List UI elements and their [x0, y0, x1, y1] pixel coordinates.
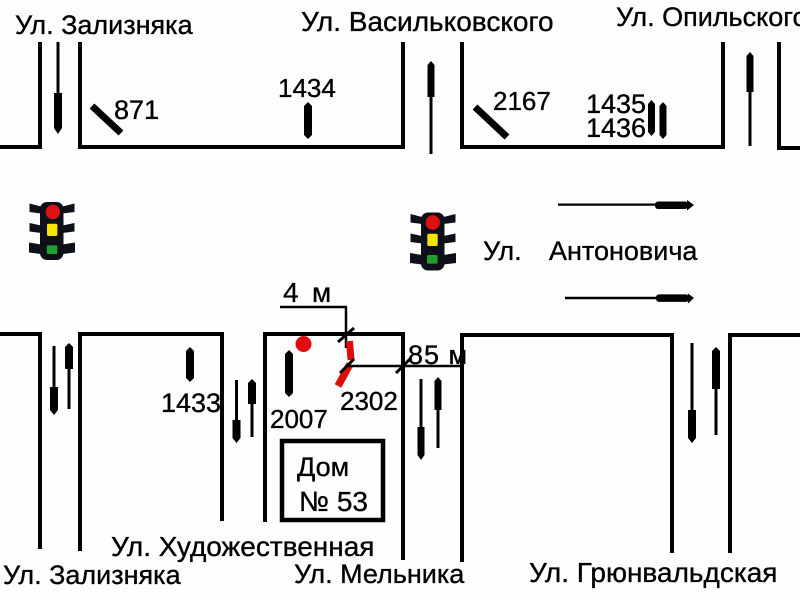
svg-text:Ул. Мельника: Ул. Мельника — [294, 559, 465, 589]
svg-text:Ул. Зализняка: Ул. Зализняка — [15, 10, 194, 40]
svg-text:Дом: Дом — [297, 452, 349, 482]
svg-text:871: 871 — [114, 95, 159, 125]
svg-text:м: м — [312, 277, 331, 308]
svg-text:Ул. Художественная: Ул. Художественная — [111, 531, 374, 562]
svg-text:1433: 1433 — [161, 388, 221, 418]
svg-text:85 м: 85 м — [408, 340, 468, 370]
svg-text:Антоновича: Антоновича — [549, 236, 698, 266]
svg-text:1434: 1434 — [278, 73, 336, 103]
svg-text:Ул.: Ул. — [483, 236, 522, 266]
svg-text:Ул. Васильковского: Ул. Васильковского — [301, 6, 554, 37]
svg-text:2007: 2007 — [270, 404, 328, 434]
svg-text:2302: 2302 — [340, 386, 398, 416]
svg-text:1436: 1436 — [586, 113, 646, 143]
svg-text:Ул. Зализняка: Ул. Зализняка — [3, 560, 182, 590]
svg-text:4: 4 — [283, 277, 299, 308]
svg-text:Ул. Грюнвальдская: Ул. Грюнвальдская — [529, 557, 777, 588]
svg-text:Ул. Опильского: Ул. Опильского — [616, 2, 800, 32]
svg-text:№ 53: № 53 — [299, 486, 368, 517]
svg-text:2167: 2167 — [493, 86, 551, 116]
